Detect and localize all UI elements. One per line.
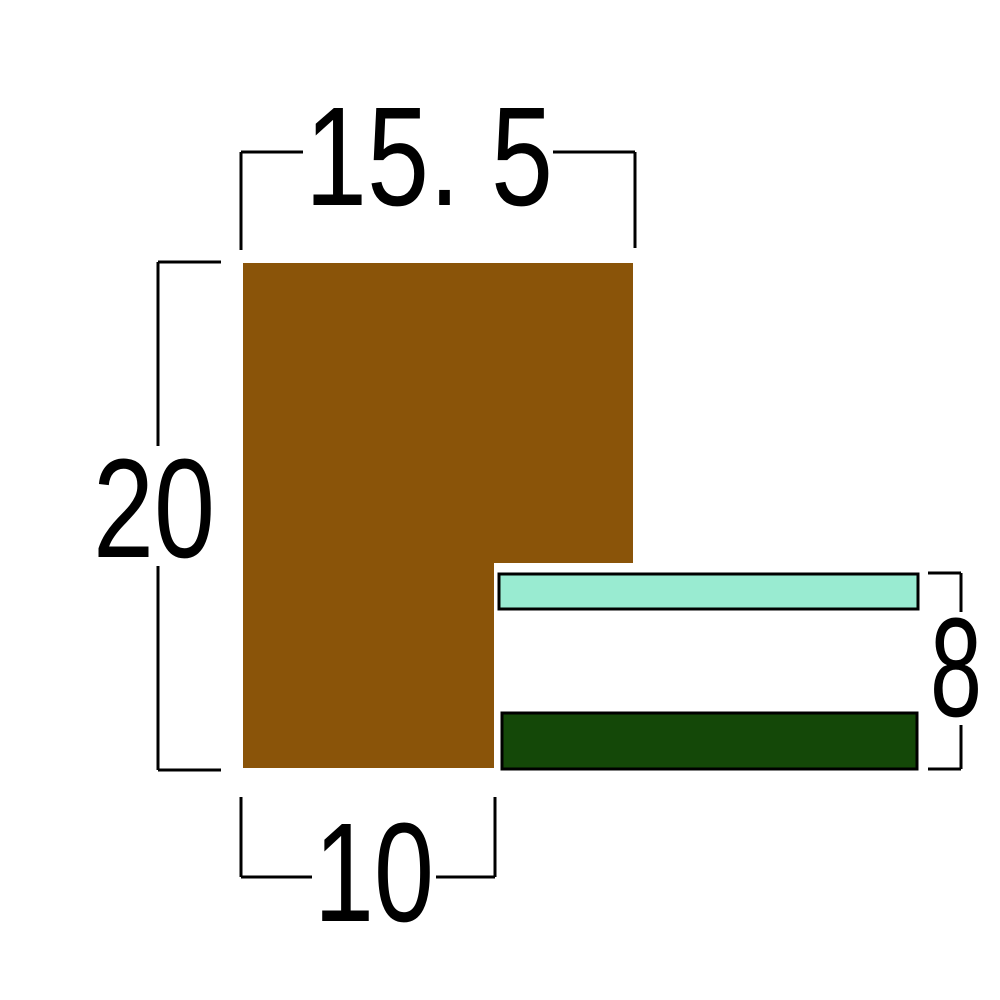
liner-strip-shape: [499, 574, 918, 609]
rabbet-strip-shape: [502, 713, 917, 769]
dimension-label-left-height: 20: [93, 429, 215, 587]
dimension-right-height: 8: [928, 573, 982, 769]
dimension-label-bottom-width: 10: [314, 793, 434, 951]
dimension-label-top-width: 15. 5: [305, 77, 553, 235]
dimension-label-right-height: 8: [930, 588, 982, 746]
cross-section-diagram: 15. 5 20 10: [0, 0, 1000, 1000]
diagram-canvas: 15. 5 20 10: [0, 0, 1000, 1000]
